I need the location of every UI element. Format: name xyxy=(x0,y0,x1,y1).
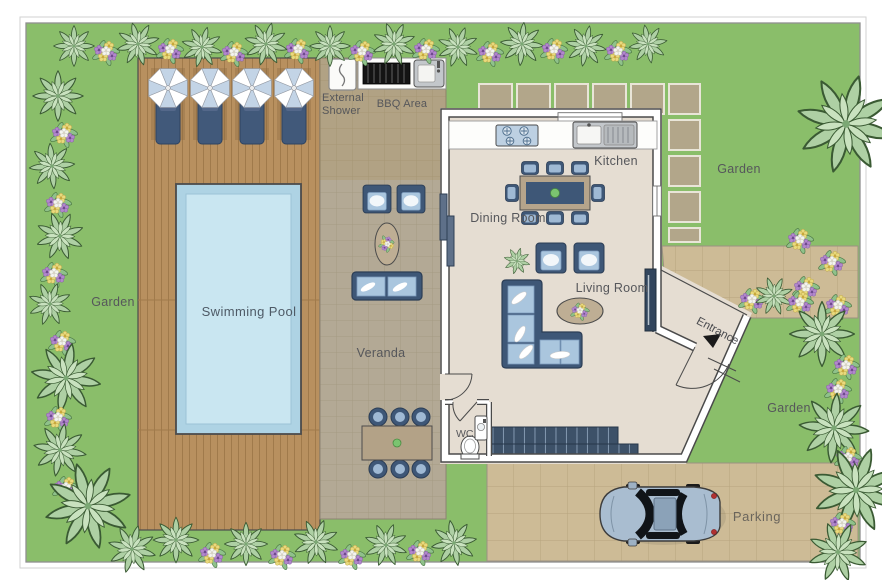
living-room-label: Living Room xyxy=(576,281,649,295)
kitchen-counter xyxy=(449,121,657,149)
wc-label: WC xyxy=(456,428,474,440)
sofa-icon xyxy=(352,272,422,300)
sun-lounger-icon xyxy=(149,68,188,144)
sun-lounger-icon xyxy=(275,68,314,144)
washbasin-icon xyxy=(475,416,487,440)
external-shower xyxy=(329,59,356,90)
armchair-icon xyxy=(397,185,425,213)
outdoor-dining-set xyxy=(362,408,432,478)
car-icon xyxy=(600,482,726,546)
window-icon xyxy=(558,113,622,122)
flower-table-icon xyxy=(375,223,399,265)
floor-plan-svg: Swimming Pool Veranda External Shower BB… xyxy=(0,0,882,580)
external-shower-label-1: External xyxy=(322,92,364,104)
armchair-icon xyxy=(574,243,604,273)
kitchen-label: Kitchen xyxy=(594,154,638,168)
coffee-table-icon xyxy=(557,298,603,324)
gas-hob-icon xyxy=(496,125,538,146)
window-icon xyxy=(653,186,662,216)
tv-icon xyxy=(645,269,656,331)
garden-left-label: Garden xyxy=(91,295,135,309)
outdoor-sink-icon xyxy=(414,60,444,87)
veranda-label: Veranda xyxy=(357,346,406,360)
dining-room-label: Dining Room xyxy=(470,211,546,225)
bbq-area-label: BBQ Area xyxy=(377,98,428,110)
armchair-icon xyxy=(363,185,391,213)
sun-lounger-icon xyxy=(191,68,230,144)
garden-bottom-right-label: Garden xyxy=(767,401,811,415)
garden-top-right-label: Garden xyxy=(717,162,761,176)
floor-plan-canvas: Swimming Pool Veranda External Shower BB… xyxy=(0,0,882,580)
external-shower-label-2: Shower xyxy=(322,105,361,117)
bbq-grill-icon xyxy=(363,63,410,84)
sun-lounger-icon xyxy=(233,68,272,144)
armchair-icon xyxy=(536,243,566,273)
parking-label: Parking xyxy=(733,509,781,524)
kitchen-sink-icon xyxy=(573,122,637,148)
swimming-pool-label: Swimming Pool xyxy=(202,304,297,319)
